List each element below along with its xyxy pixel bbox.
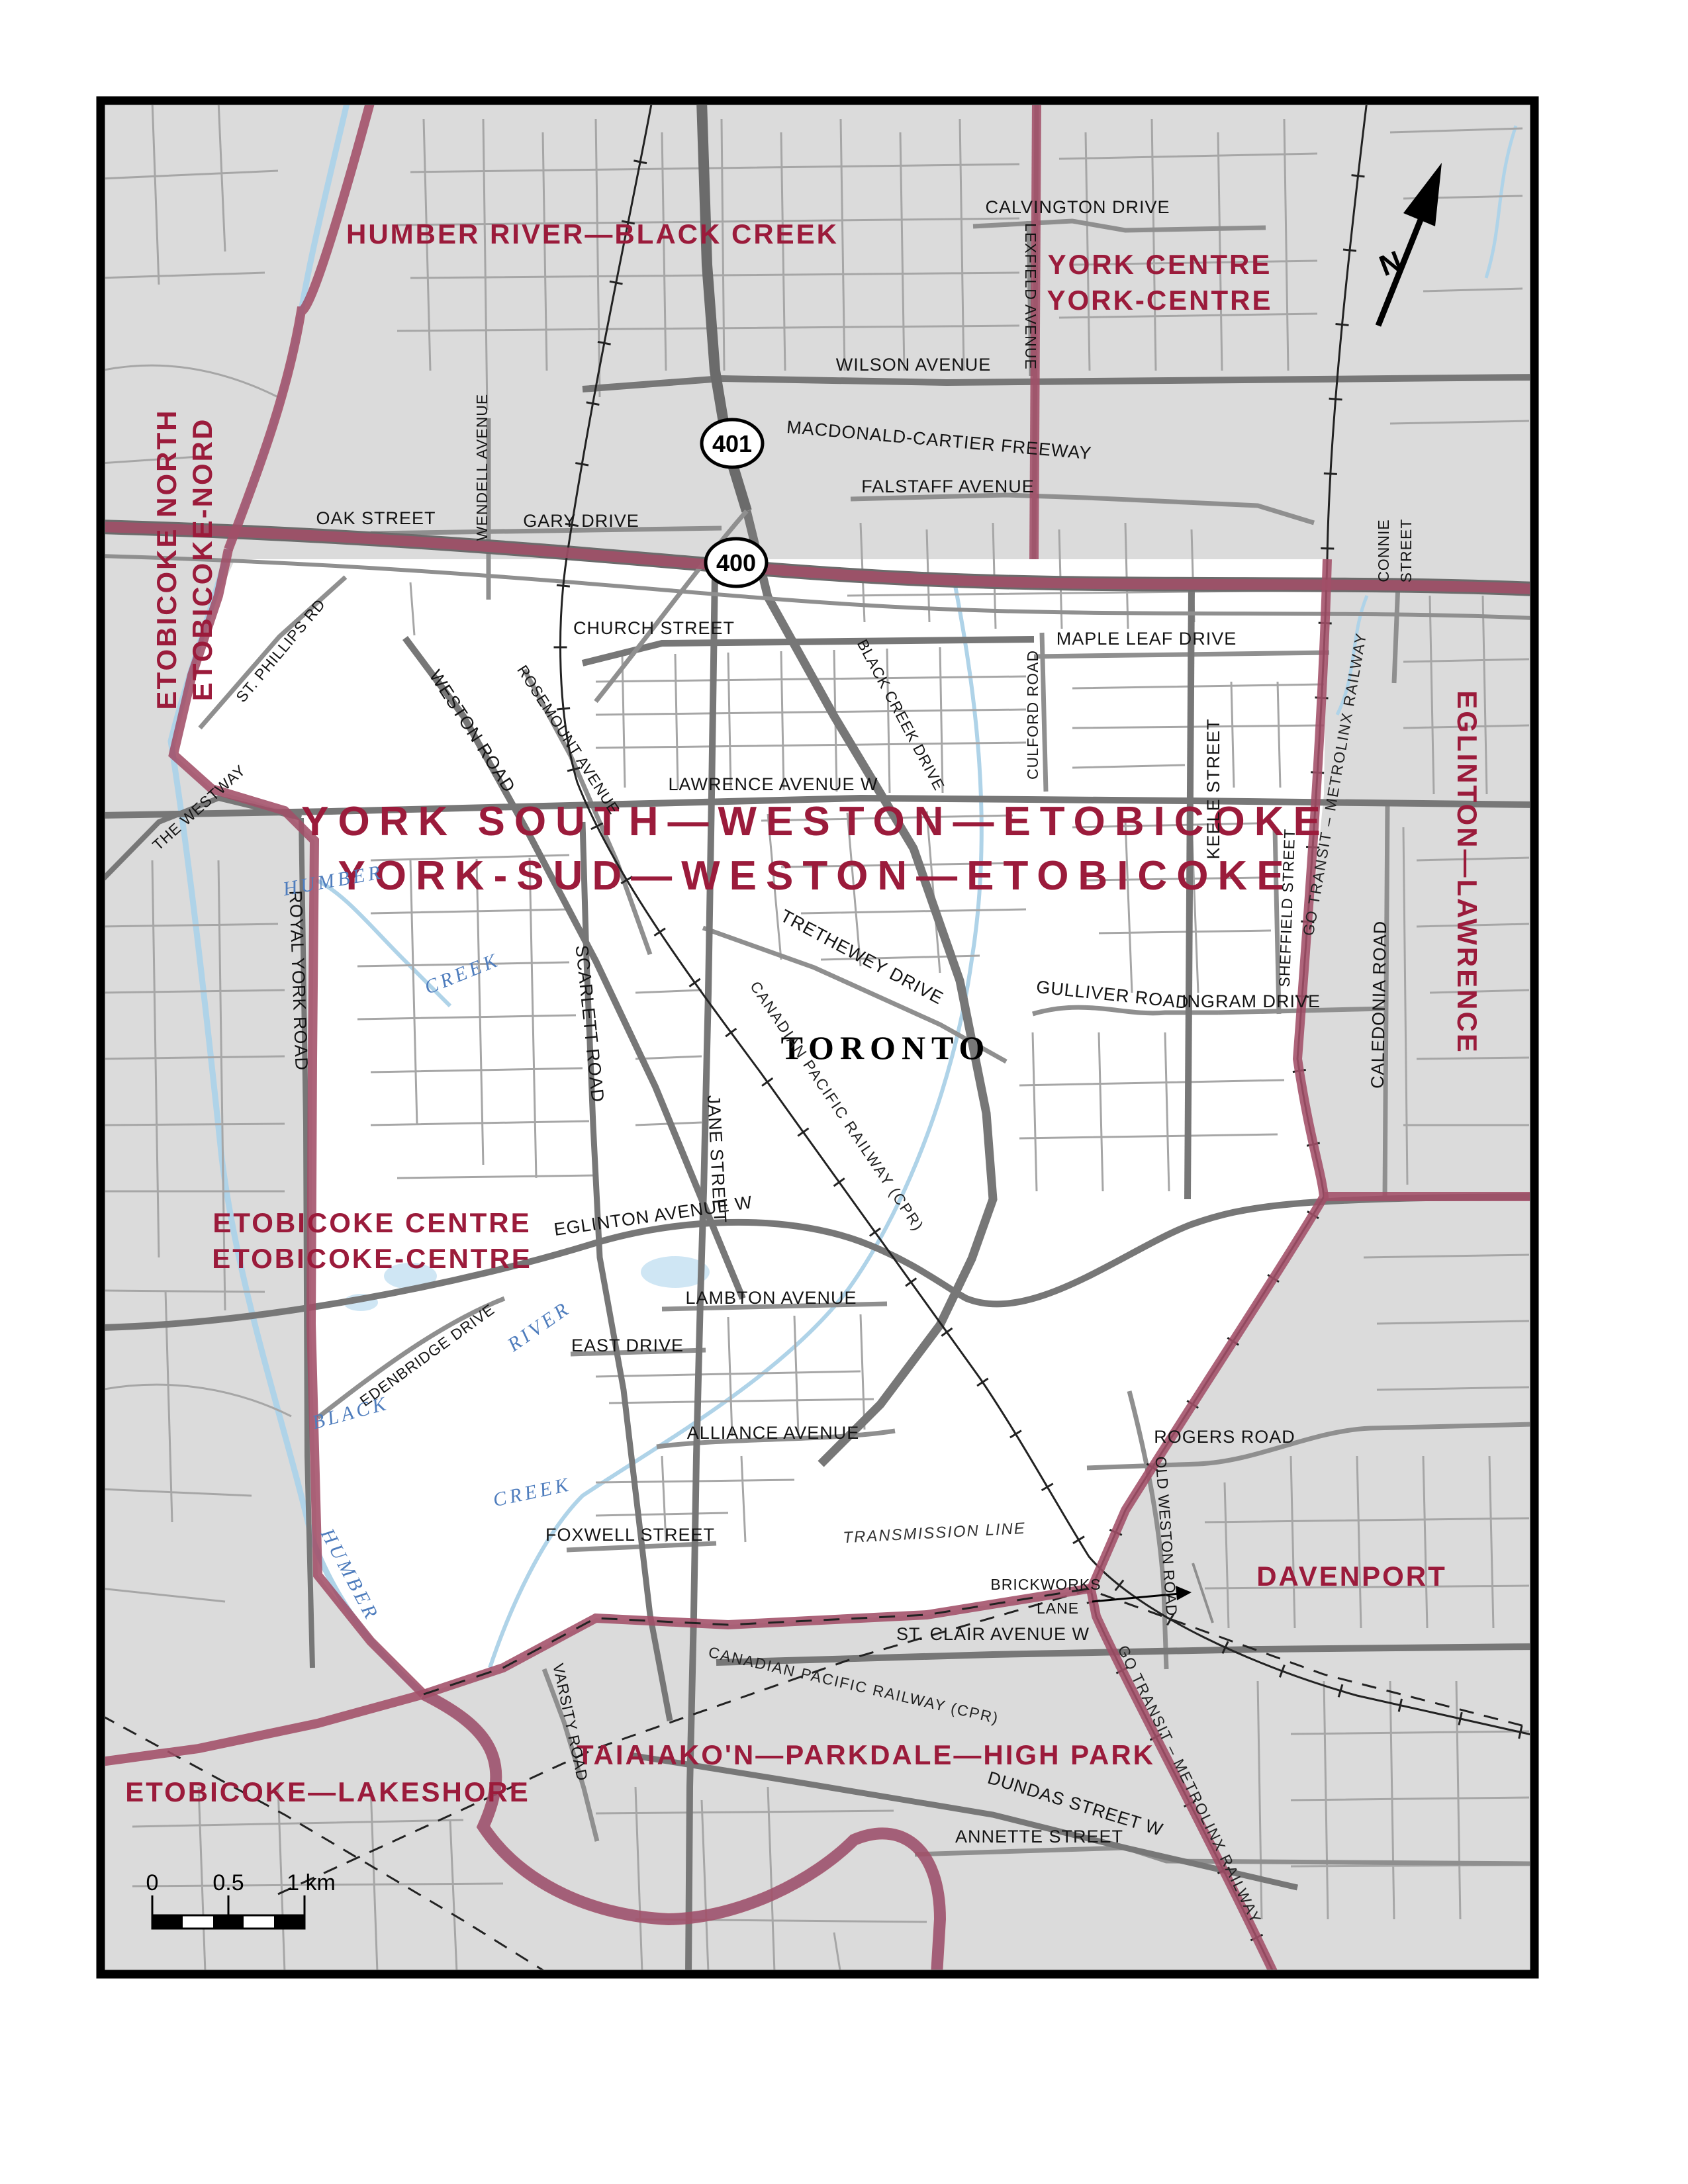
highway-401-shield: 401 (702, 420, 763, 467)
svg-text:400: 400 (716, 549, 756, 576)
district-title-label: YORK SOUTH—WESTON—ETOBICOKE (301, 799, 1330, 844)
street-label: CONNIE (1375, 519, 1392, 582)
adjacent-riding-label: ETOBICOKE-CENTRE (212, 1243, 532, 1274)
street-label: CALEDONIA ROAD (1368, 921, 1390, 1089)
street-label: FOXWELL STREET (545, 1525, 715, 1545)
street-label: LAMBTON AVENUE (685, 1288, 857, 1308)
adjacent-riding-label: YORK-CENTRE (1047, 285, 1272, 316)
street-label: GARY DRIVE (523, 511, 639, 531)
street-label: WILSON AVENUE (836, 355, 992, 375)
street-label: MAPLE LEAF DRIVE (1056, 629, 1237, 649)
scale-label: 0 (146, 1870, 159, 1895)
street-label: FALSTAFF AVENUE (861, 477, 1035, 496)
street-label: STREET (1397, 519, 1415, 583)
street-label: CHURCH STREET (573, 618, 735, 638)
riding-map: 401400 HUMBER RIVER—BLACK CREEKYORK CENT… (0, 0, 1688, 2184)
street-label: WENDELL AVENUE (473, 394, 491, 541)
adjacent-riding-label: EGLINTON—LAWRENCE (1452, 690, 1483, 1054)
street-label: BRICKWORKS (990, 1576, 1101, 1593)
street-label: LAWRENCE AVENUE W (668, 774, 878, 794)
street-label: ANNETTE STREET (955, 1827, 1123, 1846)
district-title-label: YORK-SUD—WESTON—ETOBICOKE (338, 853, 1293, 899)
street-label: KEELE STREET (1203, 718, 1223, 859)
street-label: ALLIANCE AVENUE (687, 1423, 860, 1443)
street-label: LEXFIELD AVENUE (1022, 223, 1039, 370)
adjacent-riding-label: DAVENPORT (1256, 1561, 1447, 1592)
adjacent-riding-label: ETOBICOKE CENTRE (212, 1207, 531, 1238)
street-label: INGRAM DRIVE (1182, 991, 1321, 1011)
street-label: LANE (1037, 1600, 1079, 1617)
street-label: OAK STREET (316, 508, 436, 528)
adjacent-riding-label: ETOBICOKE—LAKESHORE (125, 1776, 530, 1807)
adjacent-riding-label: YORK CENTRE (1048, 249, 1272, 280)
adjacent-riding-label: ETOBICOKE-NORD (187, 418, 218, 702)
scale-label: 0.5 (212, 1870, 244, 1895)
adjacent-riding-label: TAIAIAKO'N—PARKDALE—HIGH PARK (577, 1739, 1155, 1770)
highway-400-shield: 400 (706, 539, 767, 586)
svg-text:401: 401 (712, 430, 752, 457)
street-label: EAST DRIVE (571, 1336, 684, 1355)
scale-label: 1 km (287, 1870, 336, 1895)
street-label: ROGERS ROAD (1154, 1427, 1295, 1447)
street-label: CALVINGTON DRIVE (985, 197, 1170, 217)
street-label: ST. CLAIR AVENUE W (896, 1624, 1090, 1644)
adjacent-riding-label: ETOBICOKE NORTH (151, 409, 182, 710)
map-page: 401400 HUMBER RIVER—BLACK CREEKYORK CENT… (0, 0, 1688, 2184)
adjacent-riding-label: HUMBER RIVER—BLACK CREEK (346, 218, 839, 250)
street-label: CULFORD ROAD (1024, 650, 1041, 780)
